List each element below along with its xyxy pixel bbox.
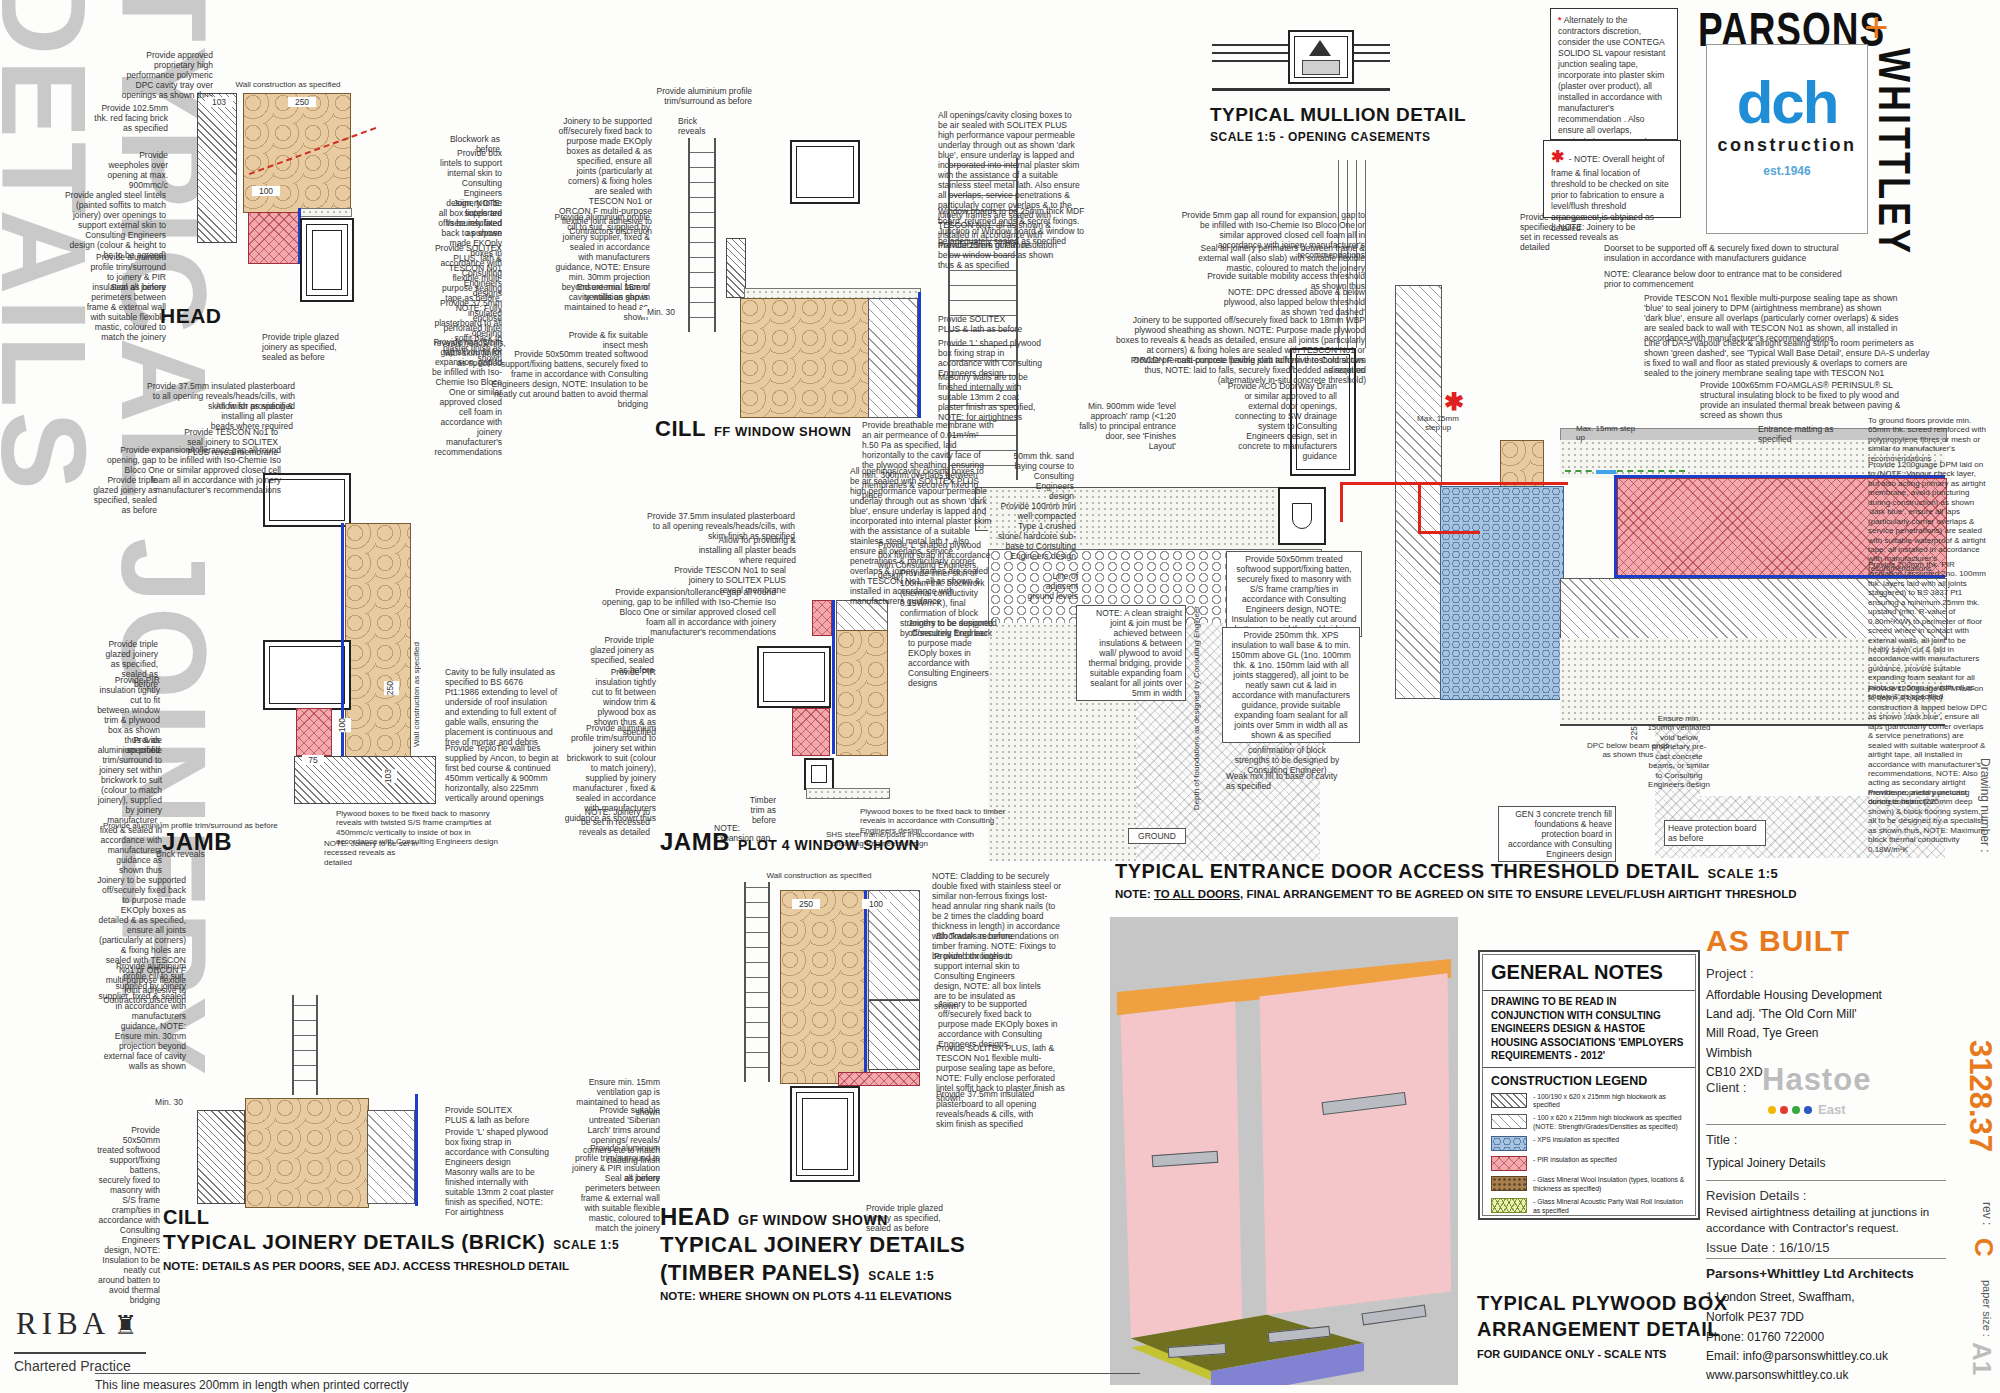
drawing-number-label: Drawing number :	[1978, 758, 1992, 853]
annotation: 250	[792, 899, 820, 909]
annotation: Provide & fix suitable insect mesh	[554, 330, 648, 350]
hastoe-dot-yellow-icon	[1768, 1106, 1776, 1114]
threshold-height-note-text: - NOTE: Overall height of frame & final …	[1551, 154, 1669, 233]
annotation: Provide 100x65mm FOAMGLAS® PERINSUL® SL …	[1700, 380, 1928, 420]
annotation: 100	[862, 899, 890, 909]
legend-label: - Glass Mineral Wool Insulation (types, …	[1533, 1176, 1687, 1193]
dch-est-label: est.1946	[1707, 164, 1867, 178]
annotation: Ensure min. 15mm ventilation gap is main…	[550, 282, 648, 322]
jamb-p4-detail-subtitle: PLOT 4 WINDOW SHOWN	[738, 837, 919, 853]
legend-label: - 100/190 x 620 x 215mm high blockwork a…	[1533, 1093, 1687, 1110]
annotation: Depth of foundations as designed by Cons…	[1192, 606, 1205, 810]
project-address-line: Affordable Housing Development	[1706, 986, 1956, 1005]
legend-item: - Glass Mineral Wool Insulation (types, …	[1491, 1176, 1687, 1193]
annotation: Provide 100mm min well compacted Type 1 …	[998, 501, 1076, 561]
timber-group-title-1: TYPICAL JOINERY DETAILS	[660, 1232, 965, 1258]
threshold-height-note-box: ✱ - NOTE: Overall height of frame & fina…	[1543, 140, 1681, 218]
annotation: Provide aluminium profile trim/surround …	[636, 86, 752, 106]
annotation: Min. 30	[642, 307, 680, 317]
timber-group-note: NOTE: WHERE SHOWN ON PLOTS 4-11 ELEVATIO…	[660, 1290, 952, 1302]
annotation: Ensure min. 150mm ventilated void below …	[1646, 714, 1712, 790]
jamb-p4-detail-title: JAMBPLOT 4 WINDOW SHOWN	[660, 828, 919, 856]
annotation: NOTE: Cladding to be securely double fix…	[932, 871, 1064, 961]
annotation: Doorset to be supported off & securely f…	[1604, 243, 1866, 263]
annotation: Line of DA-S vapour check & airtight sea…	[1644, 338, 1932, 378]
annotation: Cavity to be fully insulated as specifie…	[445, 667, 559, 747]
annotation: 225	[1628, 726, 1644, 740]
divider	[1483, 990, 1695, 991]
annotation-layer: Provide approved proprietary high perfor…	[0, 0, 2000, 1393]
annotation: Brick reveals	[678, 116, 722, 136]
annotation: Heave protection board as before	[1664, 820, 1766, 846]
threshold-detail-note: NOTE: TO ALL DOORS, FINAL ARRANGEMENT TO…	[1115, 888, 1797, 900]
cill-ff-detail-title: CILLFF WINDOW SHOWN	[655, 416, 851, 442]
annotation: Seal all joinery perimeters between fram…	[1183, 243, 1365, 273]
hastoe-dots-row: East	[1768, 1100, 1845, 1118]
timber-group-scale: SCALE 1:5	[868, 1269, 934, 1283]
plywood-box-3d-view	[1110, 917, 1458, 1385]
plywood-box-title-2: ARRANGEMENT DETAIL	[1477, 1318, 1720, 1341]
annotation: 50mm thk. sand laying course to Consulti…	[1010, 451, 1074, 501]
architect-firm: Parsons+Whittley Ltd Architects	[1706, 1266, 1914, 1281]
annotation: Wall construction as specified	[758, 871, 880, 880]
annotation: Provide TeploTie wall ties supplied by A…	[445, 743, 559, 803]
plywood-box-note: FOR GUIDANCE ONLY - SCALE NTS	[1477, 1348, 1666, 1360]
title-label: Title :	[1706, 1132, 1737, 1147]
annotation: Provide SOLITEX PLUS & lath as before	[938, 314, 1026, 334]
annotation: Provide 50x50mm treated softwood support…	[1226, 551, 1362, 637]
annotation: Provide triple glazed joinery as specifi…	[262, 332, 362, 362]
plywood-box-title-1: TYPICAL PLYWOOD BOX	[1477, 1292, 1728, 1315]
drawing-number-value: 3128.37	[1962, 1040, 1998, 1152]
project-address-line: Wimbish	[1706, 1044, 1956, 1063]
architect-email: Email: info@parsonswhittley.co.uk	[1706, 1347, 1888, 1366]
annotation: Provide aluminium profile cill to suit, …	[96, 961, 186, 1071]
hastoe-dot-red-icon	[1780, 1106, 1788, 1114]
annotation: To ground floors provide min. 65mm thk. …	[1868, 416, 1988, 463]
annotation: 100	[336, 718, 351, 732]
legend-swatch-acc	[1491, 1198, 1527, 1213]
annotation: 250	[288, 97, 316, 107]
annotation: Provide 1200guage DPM laid on to (NOTE: …	[1868, 460, 1988, 573]
drawing-sheet: TYPICAL JOINERY DETAILS PARSONS + WHITTL…	[0, 0, 2000, 1393]
cill-ff-detail-subtitle: FF WINDOW SHOWN	[714, 424, 851, 439]
annotation: Provide 50x50mm treated softwood support…	[490, 349, 648, 409]
legend-label: - PIR insulation as specified	[1533, 1156, 1617, 1164]
annotation: Max. 15mm step up	[1410, 414, 1466, 433]
annotation: Provide 250mm thk. XPS insulation to wal…	[1222, 627, 1360, 743]
threshold-detail-title: TYPICAL ENTRANCE DOOR ACCESS THRESHOLD D…	[1115, 860, 1778, 883]
head-detail-title: HEAD	[160, 304, 222, 328]
revision-code-value: C	[1968, 1238, 1999, 1257]
star-marker-icon: ✱	[1551, 148, 1569, 165]
annotation: Provide ACO DoorWay Drain or similar app…	[1220, 381, 1337, 461]
client-label: Client :	[1706, 1080, 1746, 1095]
dch-construction-logo: dch construction est.1946	[1706, 44, 1868, 234]
legend-label: - Glass Mineral Acoustic Party Wall Roll…	[1533, 1198, 1687, 1215]
annotation: 250	[384, 681, 399, 695]
annotation: Provide 200mm thk. PIR insulation (assum…	[1868, 560, 1988, 702]
annotation: Provide TESCON No1 flexible multi-purpos…	[1644, 293, 1902, 343]
construction-legend-list: - 100/190 x 620 x 215mm high blockwork a…	[1491, 1093, 1687, 1216]
issue-date: Issue Date : 16/10/15	[1706, 1240, 1830, 1255]
project-address-line: Mill Road, Tye Green	[1706, 1024, 1956, 1043]
legend-swatch-pir	[1491, 1156, 1527, 1171]
riba-logo: RIBA♜	[16, 1306, 142, 1342]
jamb-detail-title: JAMB	[162, 828, 232, 856]
architect-address-2: Norfolk PE37 7DD	[1706, 1308, 1804, 1327]
annotation: Min. 900mm wide 'level approach' ramp (<…	[1076, 401, 1176, 451]
head-gf-detail-title: HEADGF WINDOW SHOWN	[660, 1203, 888, 1231]
annotation: Masonry walls are to be finished interna…	[938, 372, 1046, 422]
annotation: Blockwork as before	[936, 931, 1020, 941]
general-notes-inner: GENERAL NOTES DRAWING TO BE READ IN CONJ…	[1482, 954, 1696, 1216]
hastoe-dot-blue-icon	[1804, 1106, 1812, 1114]
brick-group-note: NOTE: DETAILS AS PER DOORS, SEE ADJ. ACC…	[163, 1260, 569, 1272]
architect-website: www.parsonswhittley.co.uk	[1706, 1366, 1849, 1385]
annotation: Entrance matting as specified	[1758, 424, 1858, 444]
cill-brick-detail-title: CILL	[163, 1206, 209, 1229]
annotation: NOTE: A clean straight joint & join must…	[1076, 605, 1186, 701]
mullion-detail-scale: SCALE 1:5 - OPENING CASEMENTS	[1210, 130, 1431, 144]
annotation: Provide 'L' shaped plywood box fixing st…	[445, 1127, 557, 1167]
architect-address-1: 1 London Street, Swaffham,	[1706, 1288, 1855, 1307]
annotation: GEN 3 concrete trench fill foundations &…	[1498, 806, 1616, 862]
project-label: Project :	[1706, 966, 1754, 981]
legend-item: - 100 x 620 x 215mm high blockwork as sp…	[1491, 1114, 1687, 1131]
annotation: NOTE: DPC dressed above & below plywood,…	[1218, 287, 1365, 317]
annotation: Provide 50x50mm treated softwood support…	[96, 1125, 160, 1305]
annotation: ✱	[1444, 388, 1474, 416]
paper-size-value: A1	[1966, 1342, 1997, 1375]
riba-divider	[14, 1352, 146, 1354]
annotation: NOTE: Joinery to be set in recessed reve…	[576, 807, 650, 837]
annotation: Provide 102.5mm thk. red facing brick as…	[86, 103, 168, 133]
annotation: Weak mix fill to base of cavity as speci…	[1226, 771, 1338, 791]
paper-size-label: paper size :	[1981, 1280, 1993, 1337]
legend-swatch-xps	[1491, 1136, 1527, 1151]
legend-item: - PIR insulation as specified	[1491, 1156, 1687, 1171]
annotation: Joinery to be supported off/securely fix…	[908, 618, 998, 688]
annotation: Min. 30	[150, 1097, 188, 1107]
hastoe-logo: Hastoe	[1762, 1062, 1871, 1098]
general-notes-title: GENERAL NOTES	[1491, 961, 1687, 984]
annotation: Provide triple glazed joinery as specifi…	[93, 475, 157, 515]
annotation: Wall construction as specified	[412, 642, 425, 747]
hastoe-dot-green-icon	[1792, 1106, 1800, 1114]
head-gf-detail-subtitle: GF WINDOW SHOWN	[738, 1212, 888, 1228]
annotation: Provide angled steel lintels (painted so…	[64, 190, 166, 260]
annotation: 100	[252, 186, 280, 196]
annotation: Wall construction as specified	[228, 80, 348, 89]
divider	[1483, 1067, 1695, 1068]
timber-group-title-2: (TIMBER PANELS)SCALE 1:5	[660, 1260, 934, 1286]
revision-code-label: rev :	[1980, 1202, 1994, 1225]
annotation: Provide proprietary pre-cast concrete be…	[1868, 788, 1988, 854]
annotation: NOTE: Clearance below door to entrance m…	[1604, 269, 1848, 289]
annotation: Seal all joinery perimeters between fram…	[572, 1173, 660, 1233]
annotation: Provide weepholes over opening at max. 9…	[98, 150, 168, 190]
architect-phone: Phone: 01760 722000	[1706, 1328, 1824, 1347]
dch-construction-label: construction	[1707, 135, 1867, 156]
annotation: Provide aluminium profile trim/surround …	[94, 735, 162, 875]
contega-note-box: * Alternately to the contractors discret…	[1550, 8, 1678, 140]
annotation: Masonry walls are to be finished interna…	[445, 1167, 557, 1217]
annotation: GROUND	[1128, 828, 1186, 844]
annotation: 103	[382, 769, 397, 783]
fixing-bracket	[1361, 1305, 1426, 1326]
annotation: Provide expansion/tollerance gap all rou…	[602, 587, 776, 637]
general-notes-body: DRAWING TO BE READ IN CONJUNCTION WITH C…	[1491, 995, 1687, 1063]
general-notes-box: GENERAL NOTES DRAWING TO BE READ IN CONJ…	[1478, 950, 1700, 1220]
annotation: 75	[302, 755, 324, 765]
annotation: Timber trim as before	[736, 795, 776, 825]
as-built-status: AS BUILT	[1706, 924, 1850, 958]
legend-swatch-hA	[1491, 1093, 1527, 1108]
legend-swatch-hB	[1491, 1114, 1527, 1129]
annotation: NOTE: Joinery to be set in recessed reve…	[324, 839, 418, 867]
mullion-detail-title: TYPICAL MULLION DETAIL	[1210, 104, 1466, 126]
annotation: Joinery to be supported off/securely fix…	[938, 999, 1058, 1049]
revision-label: Revision Details :	[1706, 1188, 1806, 1203]
threshold-note-underlined: TO ALL DOORS	[1154, 888, 1240, 900]
annotation: Provide 37.5mm insulated plasterboard to…	[936, 1089, 1038, 1129]
scale-check-line	[95, 1373, 1140, 1374]
legend-label: - XPS insulation as specified	[1533, 1136, 1619, 1144]
construction-legend-title: CONSTRUCTION LEGEND	[1491, 1074, 1687, 1088]
brick-group-scale: SCALE 1:5	[553, 1238, 619, 1252]
threshold-detail-scale: SCALE 1:5	[1707, 866, 1778, 881]
riba-crest-icon: ♜	[114, 1311, 142, 1340]
scale-check-text: This line measures 200mm in length when …	[95, 1378, 408, 1392]
annotation: 103	[205, 97, 233, 107]
annotation: Provide approved proprietary high perfor…	[108, 50, 213, 100]
riba-chartered-practice-label: Chartered Practice	[14, 1358, 131, 1374]
annotation: Seal all joinery perimeters between fram…	[70, 282, 166, 342]
project-address-line: Land adj. 'The Old Corn Mill'	[1706, 1005, 1956, 1024]
legend-item: - 100/190 x 620 x 215mm high blockwork a…	[1491, 1093, 1687, 1110]
legend-item: - Glass Mineral Acoustic Party Wall Roll…	[1491, 1198, 1687, 1215]
annotation: Allow for providing & installing all pla…	[696, 535, 796, 565]
dch-logo-text: dch	[1707, 73, 1867, 133]
brick-group-title: TYPICAL JOINERY DETAILS (BRICK)SCALE 1:5	[163, 1230, 619, 1254]
hastoe-region-label: East	[1818, 1102, 1845, 1117]
annotation: Provide SOLITEX PLUS & lath as before	[445, 1105, 531, 1125]
annotation: Line of adjacent ground levels	[1018, 571, 1078, 601]
legend-item: - XPS insulation as specified	[1491, 1136, 1687, 1151]
revision-text: Revised airtightness detailing at juncti…	[1706, 1204, 1950, 1236]
legend-label: - 100 x 620 x 215mm high blockwork as sp…	[1533, 1114, 1687, 1131]
annotation: Max. 15mm step up	[1576, 424, 1640, 443]
legend-swatch-woolL	[1491, 1176, 1527, 1191]
drawing-title: Typical Joinery Details	[1706, 1154, 1825, 1173]
annotation: Provide 25mm of PIR insulation below win…	[938, 240, 1060, 270]
